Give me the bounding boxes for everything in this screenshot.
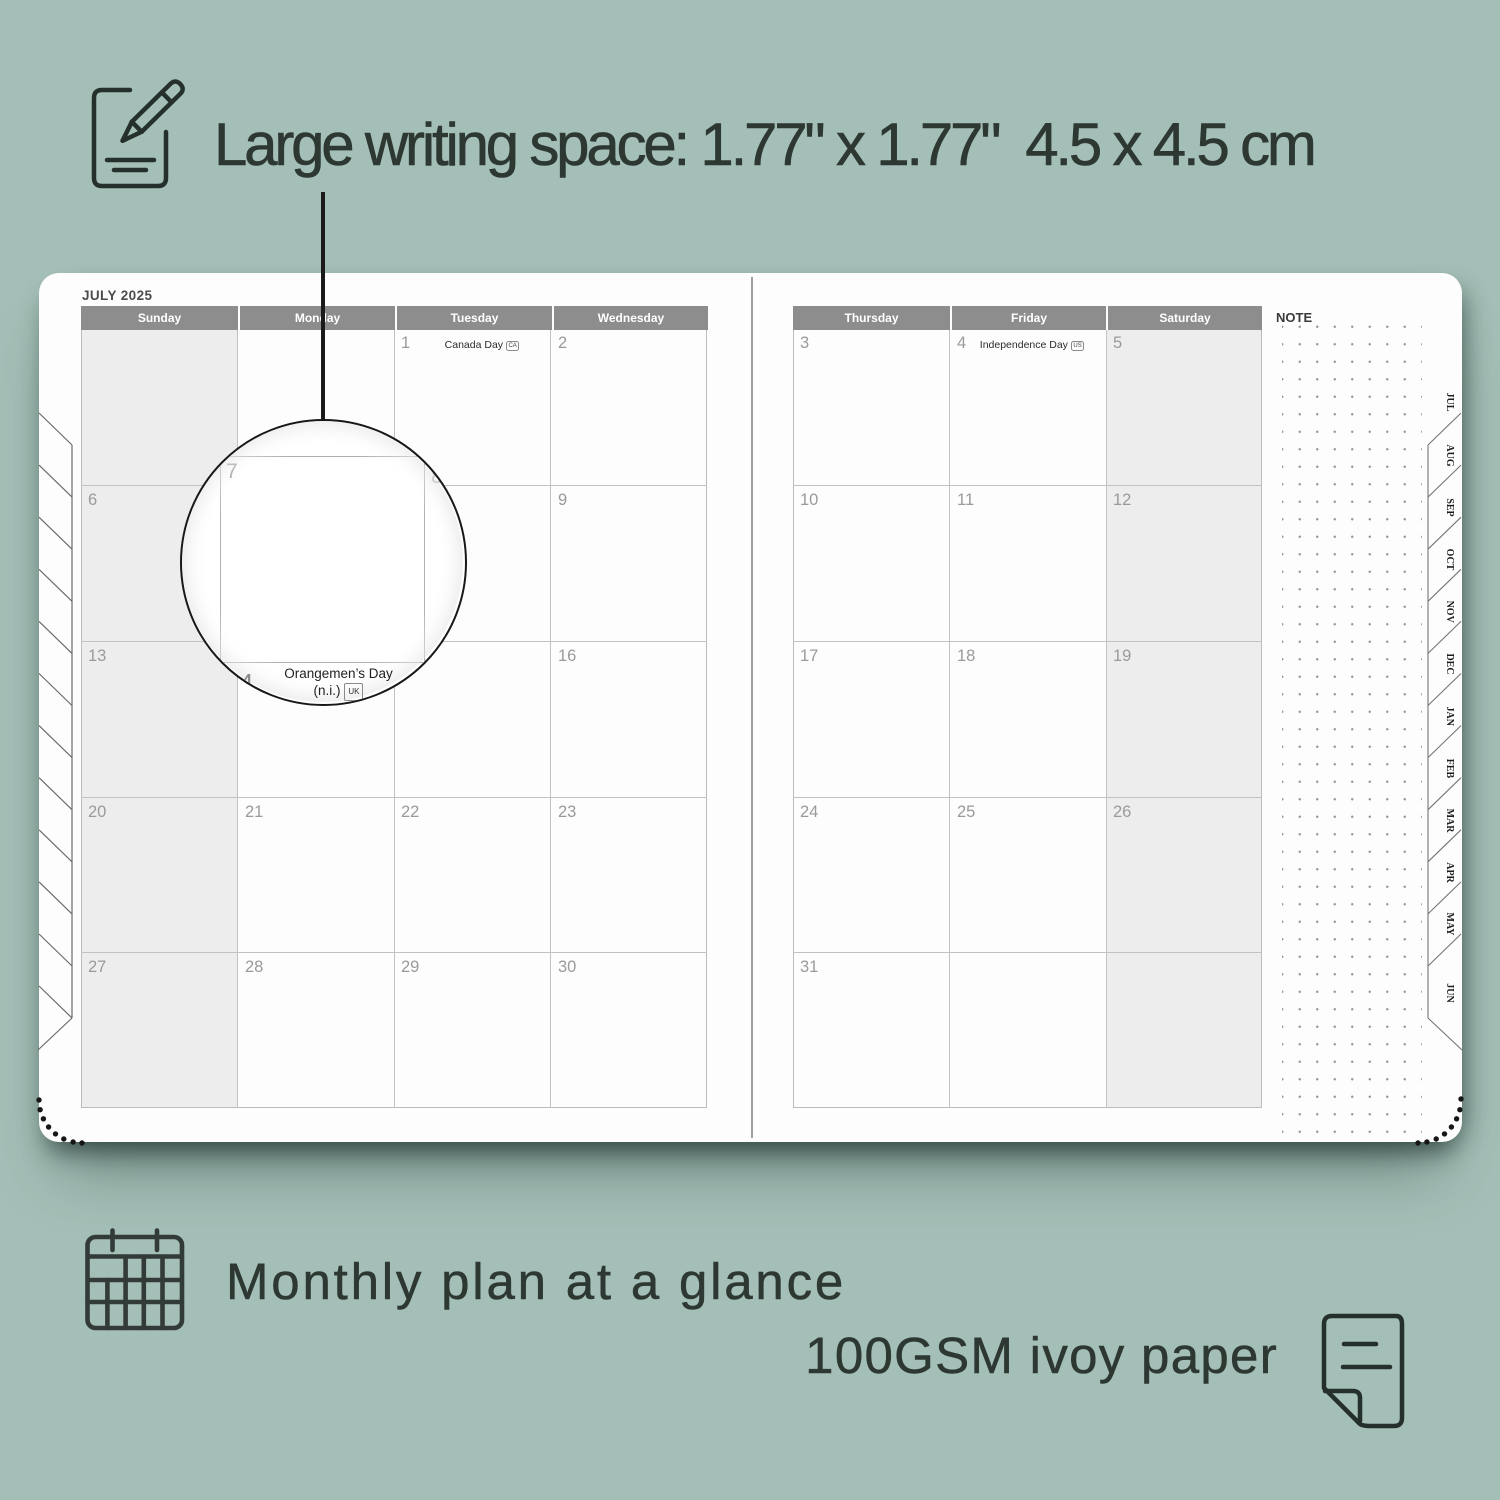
svg-text:OCT: OCT bbox=[1444, 549, 1455, 571]
svg-text:FEB: FEB bbox=[1444, 759, 1455, 779]
svg-text:JAN: JAN bbox=[1444, 706, 1455, 726]
svg-text:MAR: MAR bbox=[1444, 809, 1455, 834]
svg-text:NOV: NOV bbox=[1444, 601, 1455, 624]
svg-text:DEC: DEC bbox=[1444, 653, 1455, 674]
svg-text:AUG: AUG bbox=[1444, 444, 1455, 466]
svg-text:JUL: JUL bbox=[1444, 393, 1455, 412]
svg-text:MAY: MAY bbox=[1444, 913, 1455, 937]
svg-text:JUN: JUN bbox=[1444, 983, 1455, 1003]
svg-text:APR: APR bbox=[1444, 862, 1455, 883]
svg-text:SEP: SEP bbox=[1444, 498, 1455, 516]
